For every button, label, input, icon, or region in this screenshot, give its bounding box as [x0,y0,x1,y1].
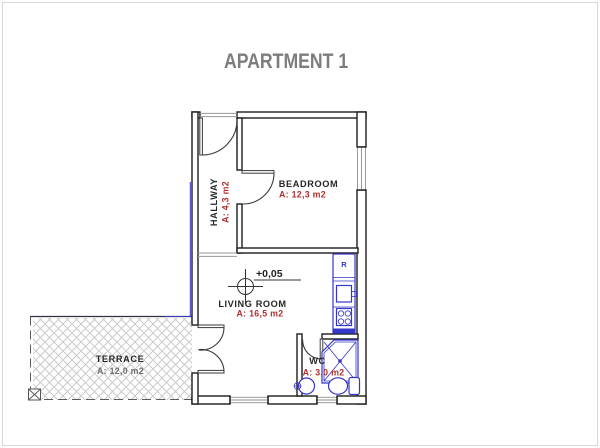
wall-segment [322,334,358,339]
wc-label: WC [309,356,326,366]
wall-segment [268,396,317,404]
wall-segment [237,112,366,118]
wall-segment [192,112,198,325]
hallway-label: HALLWAY [209,178,219,226]
terrace-corner-marker [29,389,41,400]
entrance-opening-head [200,113,237,116]
kitchen-sink [337,286,357,303]
hallway-area-label: A: 4,3 m2 [221,181,231,223]
hallway-threshold [198,253,237,256]
wall-segment [337,396,366,404]
kitchen-counter: R [333,254,357,333]
bedroom-window [357,147,366,190]
terrace-french-door [198,325,224,373]
terrace-label: TERRACE [96,354,145,364]
terrace-area-label: A: 12,0 m2 [97,366,144,376]
wall-segment [237,204,242,253]
living-room-area-label: A: 16,5 m2 [236,309,283,319]
living-room-label: LIVING ROOM [218,299,286,309]
wall-segment [237,248,358,253]
entrance-door [200,118,237,155]
wall-segment [237,118,242,170]
living-room-window [230,396,268,404]
level-value: +0,05 [256,268,283,280]
wc-window [317,396,337,404]
page-title: APARTMENT 1 [224,50,348,74]
bedroom-label: BEADROOM [279,179,338,189]
bedroom-door [242,171,274,204]
wc-area-label: A: 3,0 m2 [303,368,345,378]
wall-segment [192,373,198,404]
floor-plan-page: APARTMENT 1 [0,0,600,448]
kitchen-counter-end [333,329,355,334]
fridge-label: R [341,260,347,269]
toilet [329,378,360,395]
wall-segment [357,112,366,147]
bedroom-area-label: A: 12,3 m2 [279,190,326,200]
stove [337,309,352,326]
